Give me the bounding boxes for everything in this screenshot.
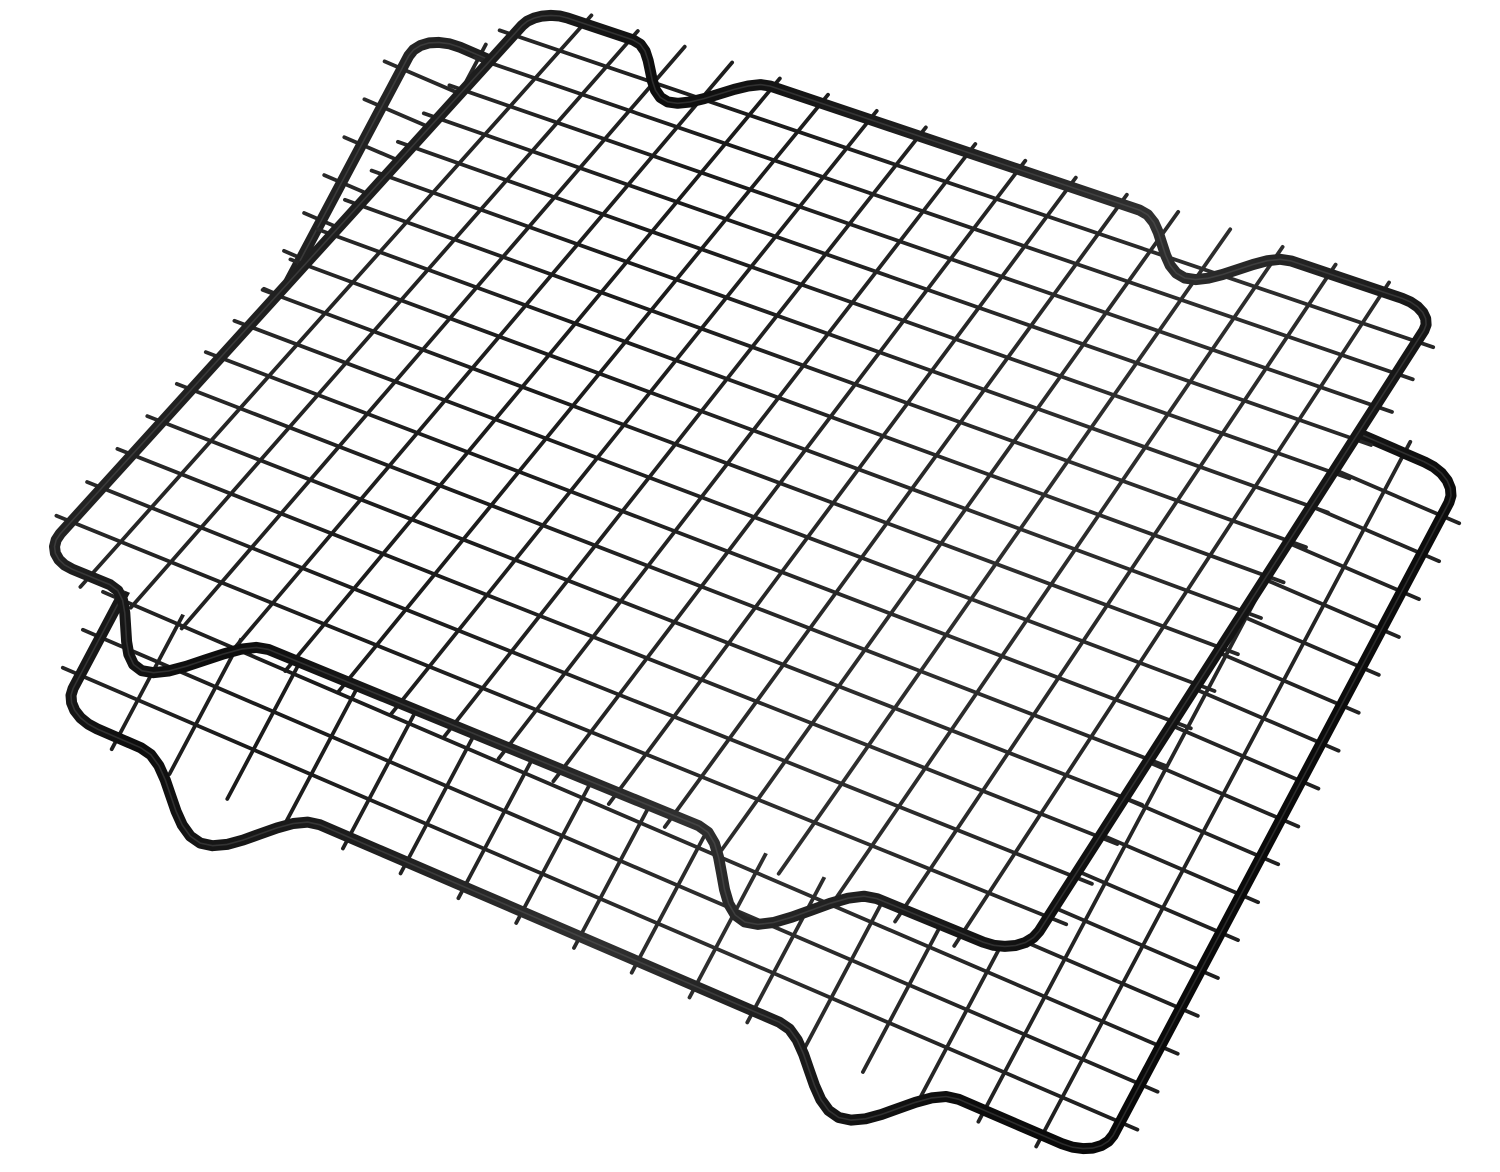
product-photo <box>0 0 1500 1172</box>
cooling-racks-illustration <box>0 0 1500 1172</box>
